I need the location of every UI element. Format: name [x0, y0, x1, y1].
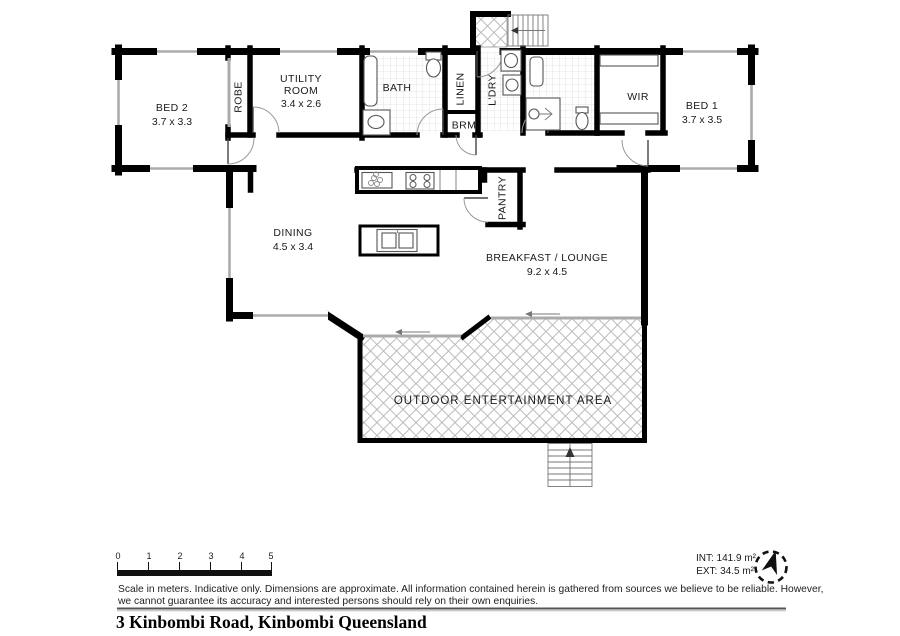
bed2-door	[228, 138, 254, 164]
external-area-text: EXT: 34.5 m²	[696, 566, 754, 577]
bed1-label: BED 1	[686, 100, 718, 112]
utility-door	[253, 107, 279, 133]
bathtub-icon	[364, 56, 377, 106]
scale-bar: 0 1 2 3 4 5	[115, 551, 273, 576]
linen-label: LINEN	[455, 73, 467, 106]
pantry-door	[464, 198, 488, 222]
stairs-arrow-up-icon	[566, 447, 575, 457]
bed2-dims: 3.7 x 3.3	[152, 116, 192, 128]
footer: Scale in meters. Indicative only. Dimens…	[116, 584, 824, 632]
dining-label: DINING	[273, 227, 312, 239]
bed1-door	[622, 140, 648, 166]
disclaimer-line1: Scale in meters. Indicative only. Dimens…	[118, 584, 824, 595]
internal-area-text: INT: 141.9 m²	[696, 553, 757, 564]
slide-arrowhead-right	[525, 311, 532, 317]
stairs-arrow-left-icon	[511, 27, 518, 34]
area-summary: INT: 141.9 m² EXT: 34.5 m²	[696, 553, 757, 577]
floorplan-page: BED 2 3.7 x 3.3 ROBE UTILITY ROOM 3.4 x …	[0, 0, 900, 636]
page-title-address: 3 Kinbombi Road, Kinbombi Queensland	[116, 612, 427, 632]
outdoor-label: OUTDOOR ENTERTAINMENT AREA	[394, 395, 612, 407]
floor-plan-image: BED 2 3.7 x 3.3 ROBE UTILITY ROOM 3.4 x …	[0, 0, 900, 636]
breakfast-dims: 9.2 x 4.5	[527, 266, 567, 278]
utility-label-2: ROOM	[284, 85, 318, 97]
brm-door	[456, 135, 476, 155]
pantry-label: PANTRY	[497, 176, 509, 220]
disclaimer-line2: we cannot guarantee its accuracy and int…	[117, 596, 538, 607]
scale-2: 2	[177, 551, 182, 561]
room-bed2: BED 2 3.7 x 3.3	[152, 102, 192, 128]
bath-label: BATH	[383, 82, 412, 94]
bed2-label: BED 2	[156, 102, 188, 114]
room-bed1: BED 1 3.7 x 3.5	[682, 100, 722, 126]
kitchen-bench-icon	[357, 168, 480, 192]
scale-bar-rule	[117, 570, 272, 576]
island-bench-icon	[360, 226, 438, 255]
wir-label: WIR	[627, 91, 649, 103]
scale-5: 5	[268, 551, 273, 561]
room-utility: UTILITY ROOM 3.4 x 2.6	[280, 73, 322, 110]
scale-0: 0	[115, 551, 120, 561]
wardrobe-shelf-bottom-icon	[600, 113, 658, 124]
room-dining: DINING 4.5 x 3.4	[273, 227, 313, 253]
compass-icon	[756, 548, 787, 582]
slide-arrowhead-left	[395, 329, 402, 335]
scale-4: 4	[239, 551, 244, 561]
room-breakfast-lounge: BREAKFAST / LOUNGE 9.2 x 4.5	[486, 252, 608, 278]
wardrobe-shelf-top-icon	[600, 55, 658, 66]
scale-1: 1	[146, 551, 151, 561]
dining-dims: 4.5 x 3.4	[273, 241, 313, 253]
brm-label: BRM	[452, 120, 477, 132]
ldry-label: L'DRY	[487, 74, 499, 106]
scale-3: 3	[208, 551, 213, 561]
bed1-dims: 3.7 x 3.5	[682, 114, 722, 126]
utility-dims: 3.4 x 2.6	[281, 98, 321, 110]
robe-label: ROBE	[233, 81, 245, 112]
utility-label-1: UTILITY	[280, 73, 322, 85]
outdoor-stairs-icon	[548, 444, 592, 487]
porch-paving	[474, 15, 507, 47]
compass-ring	[756, 552, 787, 583]
breakfast-label: BREAKFAST / LOUNGE	[486, 252, 608, 264]
entry-stairs-icon	[508, 15, 548, 46]
ensuite-tub-icon	[530, 57, 543, 86]
